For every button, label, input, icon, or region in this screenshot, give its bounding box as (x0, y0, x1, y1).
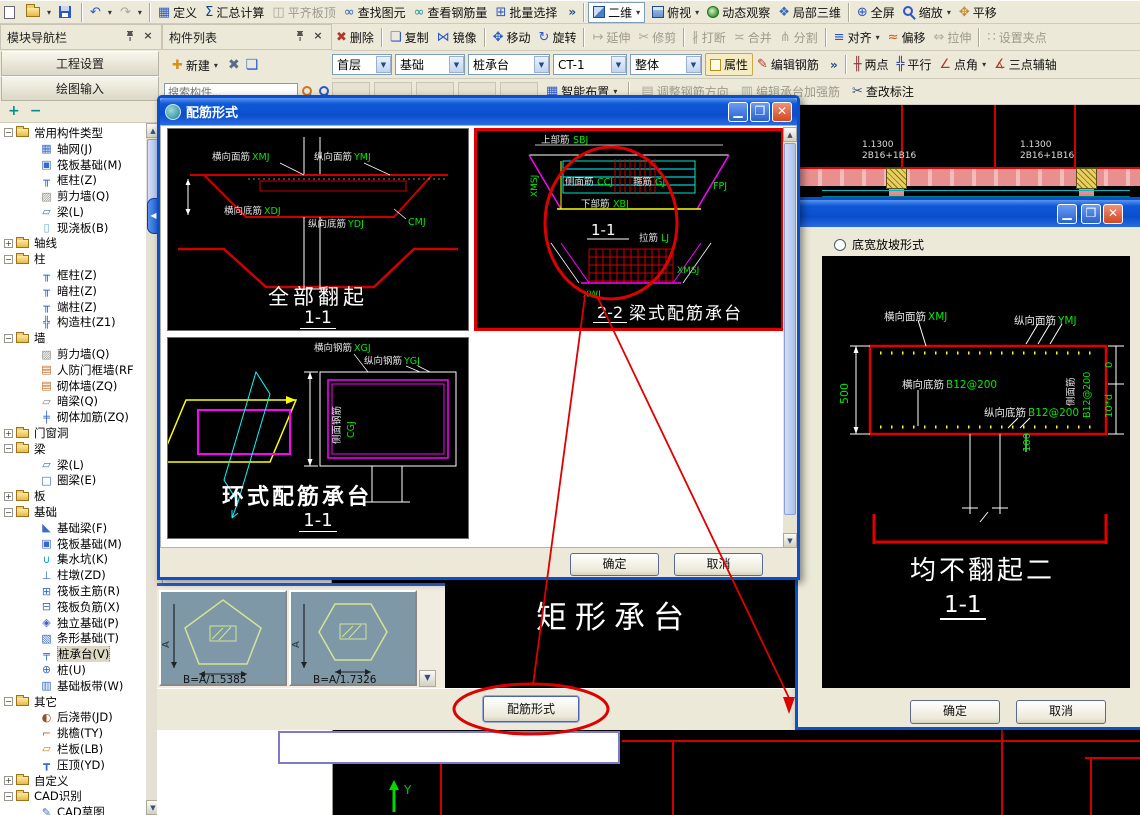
expand-toggle-icon[interactable] (27, 381, 36, 390)
tree-item[interactable]: ▥ 基础板带(W) (0, 678, 159, 694)
toolbar1-overflow[interactable]: » (561, 3, 580, 21)
expand-all-icon[interactable]: + (8, 103, 20, 120)
svg-text:纵向面筋: 纵向面筋 (1014, 314, 1056, 327)
tree-item[interactable]: ╥ 暗柱(Z) (0, 283, 159, 299)
chevron-down-icon[interactable]: ▼ (449, 56, 464, 73)
svg-text:CCJ: CCJ (597, 177, 613, 188)
tree-item-icon (16, 239, 29, 248)
expand-toggle-icon[interactable] (27, 413, 36, 422)
tree-item[interactable]: ▨ 剪力墙(Q) (0, 346, 159, 362)
expand-toggle-icon[interactable] (27, 350, 36, 359)
tree-item-label: 栏板(LB) (57, 741, 103, 757)
expand-toggle-icon[interactable] (27, 744, 36, 753)
expand-toggle-icon[interactable] (27, 571, 36, 580)
sigma-icon: Σ (205, 6, 213, 19)
tree-item[interactable]: ▨ 剪力墙(Q) (0, 188, 159, 204)
brush-delete-icon: ✖ (336, 31, 347, 44)
tree-item[interactable]: ▤ 砌体墙(ZQ) (0, 378, 159, 394)
expand-toggle-icon[interactable] (27, 476, 36, 485)
view-mode-select[interactable]: 二维 (588, 2, 645, 23)
glasses-icon: ∞ (414, 6, 425, 19)
expand-toggle-icon[interactable] (27, 618, 36, 627)
svg-text:纵向底筋: 纵向底筋 (984, 406, 1026, 419)
collapse-all-icon[interactable]: − (30, 103, 42, 120)
tree-folder-other[interactable]: − 其它 (0, 694, 159, 710)
attribute-button[interactable]: 属性 (705, 53, 753, 76)
tree-item[interactable]: ∪ 集水坑(K) (0, 552, 159, 568)
svg-text:100: 100 (1022, 433, 1033, 452)
tree-item[interactable]: ▧ 条形基础(T) (0, 631, 159, 647)
tree-item-icon: ⌐ (39, 727, 54, 740)
y-axis-arrow-icon: Y (386, 778, 420, 814)
tree-item-label: 条形基础(T) (57, 631, 119, 647)
tree-item-label: 暗梁(Q) (57, 394, 98, 410)
expand-toggle-icon[interactable] (27, 808, 36, 815)
tree-item-icon: ▯ (39, 221, 54, 234)
expand-toggle-icon[interactable] (27, 665, 36, 674)
top-view-button[interactable]: 俯视 (648, 2, 703, 23)
tree-item-icon: ╥ (39, 300, 54, 313)
option2-section: 2-2 (593, 303, 627, 322)
expand-toggle-icon[interactable] (27, 681, 36, 690)
tree-item-label: 基础梁(F) (57, 520, 107, 536)
tree-item-label: 后浇带(JD) (57, 709, 113, 725)
tree-folder-beam[interactable]: − 梁 (0, 441, 159, 457)
peijin-form-dialog: 配筋形式 ▁ ❒ ✕ 横向面筋 (157, 95, 800, 580)
svg-text:0: 0 (1104, 362, 1115, 368)
tree-item-label: 框柱(Z) (57, 267, 97, 283)
local-3d-button[interactable]: ❖局部三维 (774, 2, 845, 23)
svg-text:YMJ: YMJ (353, 152, 371, 163)
tree-item-icon: ╥ (39, 284, 54, 297)
offset-icon: ≈ (888, 31, 899, 44)
note-icon (710, 59, 721, 71)
draw-input-button[interactable]: 绘图输入 (1, 76, 159, 101)
toolbar-main: ↶↷▦定义Σ汇总计算◫平齐板顶∞查找图元∞查看钢筋量⊞批量选择»二维俯视动态观察… (0, 0, 1140, 24)
slope-radio-row[interactable]: 底宽放坡形式 (834, 236, 924, 253)
tree-item-label: 桩(U) (57, 662, 86, 678)
zoom-button[interactable]: 缩放 (899, 2, 955, 23)
expand-toggle-icon[interactable] (27, 160, 36, 169)
tree-item[interactable]: ◈ 独立基础(P) (0, 615, 159, 631)
svg-text:YGJ: YGJ (403, 356, 420, 367)
expand-toggle-icon[interactable] (27, 760, 36, 769)
tree-item[interactable]: ╥ 框柱(Z) (0, 267, 159, 283)
break-icon: ∦ (692, 31, 699, 44)
display-select[interactable]: 整体▼ (630, 54, 702, 75)
column-hatch-2 (1076, 168, 1097, 189)
extend-button[interactable]: ↦延伸 (588, 27, 634, 48)
pan-hand-icon: ✥ (959, 6, 970, 19)
svg-text:箍筋: 箍筋 (633, 176, 652, 188)
tree-item-icon (16, 444, 29, 453)
scrollbar-thumb[interactable] (784, 143, 796, 515)
expand-toggle-icon[interactable]: − (4, 697, 13, 706)
red-line-bottom-v2 (672, 742, 674, 815)
tree-item[interactable]: ▣ 筏板基础(M) (0, 157, 159, 173)
expand-toggle-icon[interactable] (27, 365, 36, 374)
ok-button[interactable]: 确定 (570, 553, 659, 576)
break-button[interactable]: ∦打断 (688, 27, 730, 48)
tree-item[interactable]: ▤ 人防门框墙(RF (0, 362, 159, 378)
pentagon-thumb[interactable]: A B=A/1.5385 (159, 590, 287, 686)
tree-item[interactable]: ▱ 栏板(LB) (0, 741, 159, 757)
redo-icon: ↷ (120, 6, 131, 19)
tree-item-label: 桩承台(V) (57, 646, 110, 662)
tree-item[interactable]: ▱ 梁(L) (0, 204, 159, 220)
tree-item-label: 梁(L) (57, 457, 84, 473)
tree-folder-custom[interactable]: + 自定义 (0, 773, 159, 789)
copy-component-icon[interactable]: ❏ (246, 59, 259, 72)
svg-text:XDJ: XDJ (264, 206, 281, 217)
move-button[interactable]: ✥移动 (489, 27, 535, 48)
element-select[interactable]: CT-1▼ (553, 54, 627, 75)
svg-text:XMSJ: XMSJ (677, 266, 699, 276)
tree-folder-axis[interactable]: + 轴线 (0, 236, 159, 252)
expand-toggle-icon[interactable]: + (4, 429, 13, 438)
tree-folder-door-window[interactable]: + 门窗洞 (0, 425, 159, 441)
empty-edit-box[interactable] (278, 731, 620, 764)
toolbar-button (978, 28, 980, 47)
project-settings-button[interactable]: 工程设置 (1, 51, 159, 76)
pin-icon[interactable] (123, 30, 137, 44)
chevron-down-icon[interactable]: ▼ (686, 56, 701, 73)
tree-item[interactable]: ╬ 构造柱(Z1) (0, 315, 159, 331)
svg-text:侧面筋: 侧面筋 (1065, 377, 1077, 406)
tree-item[interactable]: ⌐ 挑檐(TY) (0, 725, 159, 741)
stretch-icon: ⇔ (934, 31, 945, 44)
three-point-aux-axis-button[interactable]: ∡三点辅轴 (990, 54, 1061, 75)
orbit-button[interactable]: 动态观察 (703, 2, 774, 23)
summary-calc-button[interactable]: Σ汇总计算 (201, 2, 268, 23)
batch-select-button[interactable]: ⊞批量选择 (491, 2, 561, 23)
open-file-button[interactable] (22, 5, 55, 19)
tree-item-icon: ▤ (39, 379, 54, 392)
tree-item[interactable]: ╪ 砌体加筋(ZQ) (0, 409, 159, 425)
check-annotation-icon: ✂ (852, 85, 863, 98)
tree-item-label: 挑檐(TY) (57, 725, 103, 741)
expand-toggle-icon[interactable] (27, 602, 36, 611)
tree-folder-wall[interactable]: − 墙 (0, 330, 159, 346)
svg-text:纵向底筋: 纵向底筋 (308, 218, 346, 230)
copy-button[interactable]: ❏复制 (386, 27, 433, 48)
tree-item-label: 剪力墙(Q) (57, 188, 110, 204)
tree-item-label: 柱墩(ZD) (57, 567, 106, 583)
tree-item-label: 自定义 (34, 773, 69, 789)
delete-button[interactable]: ✖删除 (332, 27, 378, 48)
align-button[interactable]: ≡对齐 (830, 27, 884, 48)
expand-toggle-icon[interactable] (27, 192, 36, 201)
expand-toggle-icon[interactable]: − (4, 334, 13, 343)
full-screen-icon: ⊕ (857, 6, 868, 19)
parallel-axis-button[interactable]: ╬平行 (893, 54, 936, 75)
components-panel-header: 构件列表 × (162, 24, 332, 50)
cancel-button[interactable]: 取消 (674, 553, 763, 576)
svg-text:B12@200: B12@200 (946, 379, 997, 391)
trim-button[interactable]: ✂修剪 (634, 27, 680, 48)
tree-item-icon: ⊥ (39, 569, 54, 582)
tree-folder-column[interactable]: − 柱 (0, 251, 159, 267)
toolbar-button (583, 28, 585, 47)
option1-section: 1-1 (168, 308, 468, 328)
option-ring-style[interactable]: 横向钢筋 XGJ 纵向钢筋 YGJ 侧面钢筋 CGJ 环式配筋承台 1-1 (167, 337, 469, 539)
point-angle-axis-button[interactable]: ∠点角 (935, 54, 990, 75)
tree-item[interactable]: ┳ 压顶(YD) (0, 757, 159, 773)
floor-select[interactable]: 首层▼ (332, 54, 392, 75)
svg-text:侧面筋: 侧面筋 (565, 176, 594, 188)
expand-toggle-icon[interactable]: + (4, 492, 13, 501)
edit-rebar-button[interactable]: ✎编辑钢筋 (753, 54, 823, 75)
tree-item-label: 梁(L) (57, 204, 84, 220)
rotate-icon: ↻ (539, 31, 550, 44)
new-file-button[interactable] (0, 4, 22, 21)
svg-text:横向底筋: 横向底筋 (224, 205, 262, 217)
option-full-flip[interactable]: 横向面筋 XMJ 纵向面筋 YMJ 横向底筋 XDJ 纵向底筋 YDJ CMJ … (167, 128, 469, 331)
expand-toggle-icon[interactable] (27, 223, 36, 232)
expand-toggle-icon[interactable] (27, 318, 36, 327)
expand-toggle-icon[interactable] (27, 271, 36, 280)
svg-text:纵向面筋: 纵向面筋 (314, 151, 352, 163)
tree-item-label: CAD草图 (57, 804, 105, 815)
axis-parallel-icon: ╬ (897, 58, 905, 71)
expand-toggle-icon[interactable]: − (4, 444, 13, 453)
svg-text:XMJ: XMJ (252, 152, 270, 163)
tree-item-icon: ▱ (39, 205, 54, 218)
tree-item[interactable]: ╥ 端柱(Z) (0, 299, 159, 315)
extend-icon: ↦ (592, 31, 603, 44)
toolbar3-overflow[interactable]: » (823, 56, 842, 74)
nav-panel-title: 模块导航栏 (7, 29, 119, 46)
thumb1-formula: B=A/1.5385 (183, 674, 246, 684)
expand-toggle-icon[interactable] (27, 176, 36, 185)
tree-item-icon (16, 128, 29, 137)
tree-item-icon (16, 776, 29, 785)
radio-icon[interactable] (834, 239, 846, 251)
expand-toggle-icon[interactable] (27, 539, 36, 548)
close-icon[interactable]: ✕ (1103, 204, 1123, 224)
local-3d-icon: ❖ (778, 6, 790, 19)
tree-item-label: 墙 (34, 330, 46, 346)
red-line-bottom-h2 (1085, 757, 1140, 759)
tree-item-label: 轴线 (34, 236, 57, 252)
expand-toggle-icon[interactable] (27, 713, 36, 722)
merge-button[interactable]: ≍合并 (730, 27, 776, 48)
expand-toggle-icon[interactable] (27, 302, 36, 311)
delete-component-icon[interactable]: ✖ (228, 59, 240, 72)
set-grip-button[interactable]: ∷设置夹点 (983, 27, 1050, 48)
slope-drawing-area: 横向面筋 XMJ 纵向面筋 YMJ 横向底筋 B12@200 纵向底筋 B12@… (822, 256, 1130, 688)
grip-icon: ∷ (987, 31, 995, 44)
expand-toggle-icon[interactable] (27, 650, 36, 659)
svg-text:B12@200: B12@200 (1028, 407, 1079, 419)
tree-item-icon (16, 492, 29, 501)
slope-dialog-titlebar[interactable]: ▁ ❒ ✕ (798, 200, 1140, 227)
scroll-up-icon[interactable]: ▲ (783, 127, 797, 142)
tree-item[interactable]: ▱ 梁(L) (0, 457, 159, 473)
option-beam-style[interactable]: 上部筋 SBJ XMSJ 侧面筋 CCJ 箍筋 GJ 下部筋 XBJ FPJ 1… (474, 128, 784, 331)
stretch-button[interactable]: ⇔拉伸 (930, 27, 976, 48)
tree-item-icon: ▦ (39, 142, 54, 155)
slope-radio-label: 底宽放坡形式 (852, 236, 924, 253)
tree-item-label: 砌体加筋(ZQ) (57, 409, 129, 425)
minimize-icon[interactable]: ▁ (1057, 204, 1077, 224)
tree-item-label: 现浇板(B) (57, 220, 108, 236)
save-button[interactable] (55, 4, 78, 20)
tree-item[interactable]: ⊕ 桩(U) (0, 662, 159, 678)
expand-toggle-icon[interactable] (27, 207, 36, 216)
find-element-button[interactable]: ∞查找图元 (340, 2, 410, 23)
red-line-bottom-v3 (1001, 730, 1003, 815)
chevron-down-icon[interactable]: ▼ (611, 56, 626, 73)
close-icon[interactable]: ✕ (772, 102, 792, 122)
tree-item[interactable]: ╥ 框柱(Z) (0, 172, 159, 188)
tree-item[interactable]: □ 圈梁(E) (0, 473, 159, 489)
two-point-axis-button[interactable]: ╫两点 (850, 54, 893, 75)
tree-item[interactable]: ▣ 筏板基础(M) (0, 536, 159, 552)
tree-folder-common-types[interactable]: − 常用构件类型 (0, 125, 159, 141)
option3-caption: 环式配筋承台 (222, 479, 372, 511)
peijin-style-button[interactable]: 配筋形式 (483, 696, 579, 722)
mirror-button[interactable]: ⋈镜像 (433, 27, 481, 48)
expand-toggle-icon[interactable] (27, 555, 36, 564)
tree-item-icon (16, 334, 29, 343)
expand-toggle-icon[interactable]: − (4, 508, 13, 517)
tree-item[interactable]: ▱ 暗梁(Q) (0, 394, 159, 410)
group-select[interactable]: 基础▼ (395, 54, 465, 75)
split-button[interactable]: ⋔分割 (776, 27, 822, 48)
tree-folder-slab[interactable]: + 板 (0, 488, 159, 504)
tree-item[interactable]: ◐ 后浇带(JD) (0, 709, 159, 725)
pin-icon[interactable] (293, 30, 307, 44)
new-component-button[interactable]: ✚新建 (168, 55, 222, 76)
toolbar-context: 首层▼ 基础▼ 桩承台▼ CT-1▼ 整体▼ 属性✎编辑钢筋»╫两点╬平行∠点角… (332, 51, 1140, 79)
slope-cad-drawing: 横向面筋 XMJ 纵向面筋 YMJ 横向底筋 B12@200 纵向底筋 B12@… (822, 256, 1130, 548)
align-slab-top-button[interactable]: ◫平齐板顶 (268, 2, 339, 23)
new-plus-icon: ✚ (172, 59, 183, 72)
expand-toggle-icon[interactable] (27, 397, 36, 406)
tree-item[interactable]: ⊥ 柱墩(ZD) (0, 567, 159, 583)
tree-item-label: 其它 (34, 694, 57, 710)
beam-annotation-1: 1.13002B16+1B16 (862, 140, 916, 162)
svg-text:侧面钢筋: 侧面钢筋 (331, 406, 343, 444)
tree-item-icon: ◐ (39, 711, 54, 724)
redo-button[interactable]: ↷ (116, 4, 146, 21)
svg-text:YDJ: YDJ (347, 219, 364, 230)
tree-item[interactable]: ⊞ 筏板主筋(R) (0, 583, 159, 599)
save-disk-icon (59, 6, 71, 18)
expand-toggle-icon[interactable]: + (4, 239, 13, 248)
svg-text:SBJ: SBJ (573, 135, 588, 146)
cyan-line (822, 190, 1130, 191)
tree-item-label: 筏板基础(M) (57, 157, 122, 173)
tree-item-label: 筏板负筋(X) (57, 599, 120, 615)
define-table-icon: ▦ (158, 6, 170, 19)
tree-item-icon: ◈ (39, 616, 54, 629)
mirror-icon: ⋈ (437, 31, 450, 44)
rotate-button[interactable]: ↻旋转 (535, 27, 581, 48)
svg-text:拉筋: 拉筋 (639, 232, 658, 244)
minimize-icon[interactable]: ▁ (728, 102, 748, 122)
dialog-title: 配筋形式 (186, 102, 238, 121)
undo-button[interactable]: ↶ (86, 4, 116, 21)
tree-folder-cad[interactable]: − CAD识别 (0, 788, 159, 804)
view-rebar-qty-button[interactable]: ∞查看钢筋量 (410, 2, 492, 23)
tree-item-icon (16, 792, 29, 801)
expand-toggle-icon[interactable]: − (4, 255, 13, 264)
expand-toggle-icon[interactable]: + (4, 776, 13, 785)
expand-toggle-icon[interactable] (27, 286, 36, 295)
maximize-icon[interactable]: ❒ (750, 102, 770, 122)
define-button[interactable]: ▦定义 (154, 2, 201, 23)
tree-item-pile-cap[interactable]: ╤ 桩承台(V) (0, 646, 159, 662)
tree-item[interactable]: ✎ CAD草图 (0, 804, 159, 815)
pan-button[interactable]: ✥平移 (955, 2, 1001, 23)
expand-toggle-icon[interactable]: − (4, 128, 13, 137)
close-icon[interactable]: × (141, 30, 155, 44)
tree-folder-foundation[interactable]: − 基础 (0, 504, 159, 520)
pen-icon: ✎ (757, 58, 768, 71)
tree-item-label: 集水坑(K) (57, 552, 108, 568)
tree-item-label: 筏板基础(M) (57, 536, 122, 552)
chevron-down-icon[interactable]: ▼ (376, 56, 391, 73)
svg-text:GJ: GJ (655, 177, 665, 188)
tree-item[interactable]: ⊟ 筏板负筋(X) (0, 599, 159, 615)
expand-toggle-icon[interactable] (27, 523, 36, 532)
tree-item-label: 柱 (34, 251, 46, 267)
tree-item[interactable]: ▦ 轴网(J) (0, 141, 159, 157)
copy-icon: ❏ (390, 31, 402, 44)
tree-item-label: 端柱(Z) (57, 299, 97, 315)
svg-text:XGJ: XGJ (354, 343, 371, 354)
peijin-dialog-titlebar[interactable]: 配筋形式 ▁ ❒ ✕ (160, 98, 797, 125)
ok-button[interactable]: 确定 (910, 700, 1000, 724)
tree-item[interactable]: ▯ 现浇板(B) (0, 220, 159, 236)
app-window: 1.13002B16+1B16 1.13002B16+1B16 矩形承台 Y ↶… (0, 0, 1140, 815)
maximize-icon[interactable]: ❒ (1081, 204, 1101, 224)
expand-toggle-icon[interactable] (27, 460, 36, 469)
svg-text:XWJ: XWJ (583, 290, 601, 300)
tree-item-icon: ▨ (39, 190, 54, 203)
expand-toggle-icon[interactable]: − (4, 792, 13, 801)
type-select[interactable]: 桩承台▼ (468, 54, 550, 75)
expand-toggle-icon[interactable] (27, 144, 36, 153)
cube-icon (652, 6, 664, 18)
hexagon-thumb[interactable]: A B=A/1.7326 (289, 590, 417, 686)
expand-toggle-icon[interactable] (27, 587, 36, 596)
close-icon[interactable]: × (311, 30, 325, 44)
tree-item-icon: ┳ (39, 758, 54, 771)
full-screen-button[interactable]: ⊕全屏 (853, 2, 899, 23)
scroll-down-icon[interactable]: ▼ (783, 533, 797, 548)
svg-text:横向底筋: 横向底筋 (902, 378, 944, 391)
tree-item[interactable]: ◣ 基础梁(F) (0, 520, 159, 536)
check-annotation-button[interactable]: ✂查改标注 (848, 81, 918, 102)
nav-panel-header: 模块导航栏 × (0, 24, 162, 50)
dialog-icon (165, 104, 181, 120)
tree-item-label: 压顶(YD) (57, 757, 105, 773)
tree-item-label: 板 (34, 488, 46, 504)
offset-button[interactable]: ≈偏移 (884, 27, 930, 48)
svg-text:500: 500 (838, 383, 851, 404)
dialog-scrollbar[interactable]: ▲ ▼ (783, 127, 797, 548)
expand-toggle-icon[interactable] (27, 729, 36, 738)
cancel-button[interactable]: 取消 (1016, 700, 1106, 724)
chevron-down-icon[interactable]: ▼ (534, 56, 549, 73)
expand-toggle-icon[interactable] (27, 634, 36, 643)
svg-text:FPJ: FPJ (713, 181, 727, 192)
red-line-bottom-h (622, 740, 1140, 742)
thumb-scroll-down-icon[interactable]: ▼ (419, 670, 436, 687)
